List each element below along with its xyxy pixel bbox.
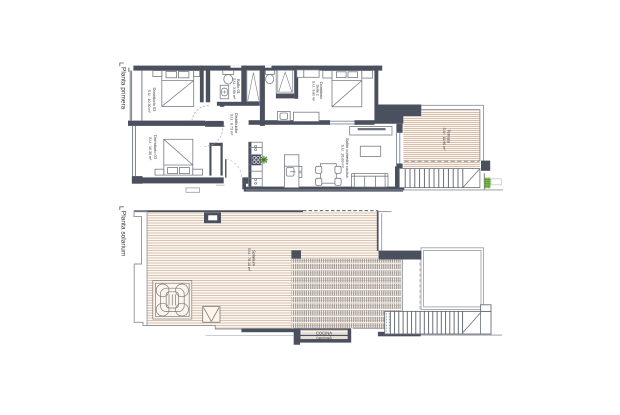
svg-text:Baño 01: Baño 01 [236, 79, 241, 95]
svg-text:Dormitorio 03: Dormitorio 03 [153, 135, 158, 160]
svg-text:S.U.: 78.10 m²: S.U.: 78.10 m² [247, 248, 251, 272]
svg-text:Distribuidor: Distribuidor [234, 113, 239, 134]
svg-text:S.U.: 6.73 m²: S.U.: 6.73 m² [230, 114, 234, 136]
svg-text:(opcional): (opcional) [316, 336, 331, 340]
svg-text:Planta primera: Planta primera [120, 67, 127, 110]
svg-text:Dormitorio 02: Dormitorio 02 [152, 88, 157, 113]
svg-text:Terraza: Terraza [446, 130, 451, 144]
svg-text:S.U.: 9.80 m²: S.U.: 9.80 m² [312, 81, 316, 102]
svg-text:S.U.: 11.90 m²: S.U.: 11.90 m² [442, 128, 446, 152]
svg-text:Planta solarium: Planta solarium [120, 211, 127, 257]
svg-text:S.U.: 3.60 m²: S.U.: 3.60 m² [232, 78, 236, 100]
svg-text:COCINA: COCINA [316, 330, 332, 335]
svg-text:Solarium: Solarium [251, 250, 256, 266]
svg-text:S.U.: 26.63 m²: S.U.: 26.63 m² [341, 145, 345, 169]
svg-text:S.U.: 10.36 m²: S.U.: 10.36 m² [148, 137, 152, 161]
svg-text:S.U.: 10.30 m²: S.U.: 10.30 m² [147, 90, 151, 114]
svg-text:Salón comedor cocina: Salón comedor cocina [345, 138, 350, 178]
